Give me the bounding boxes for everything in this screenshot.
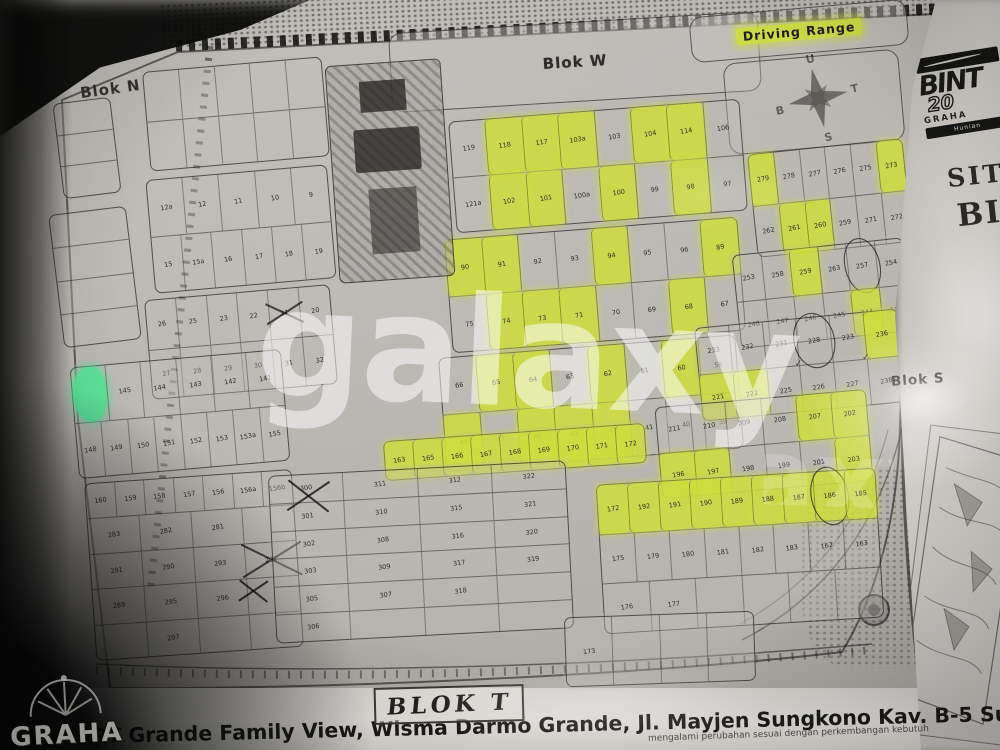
plot-cell: 162 bbox=[808, 520, 846, 571]
plot-number: 179 bbox=[633, 530, 674, 583]
plot-number: 9 bbox=[289, 164, 333, 225]
plot-cell: 19 bbox=[301, 222, 336, 280]
plot-cell: 281 bbox=[190, 509, 244, 547]
block-nw-b: 12a12111091515a16171819 bbox=[145, 164, 336, 293]
block-left-col-a bbox=[52, 97, 121, 199]
plot-cell: 98 bbox=[670, 158, 711, 215]
plot-cell: 191 bbox=[658, 480, 692, 530]
plot-cell bbox=[253, 110, 293, 161]
plot-cell: 209 bbox=[725, 399, 764, 446]
plot-cell: 117 bbox=[521, 114, 562, 171]
plot-cell: 273 bbox=[876, 139, 907, 192]
plot-cell: 172 bbox=[614, 424, 646, 464]
plot-cell: 319 bbox=[495, 545, 571, 576]
facility-building bbox=[353, 126, 422, 174]
plot-cell bbox=[61, 161, 120, 198]
plot-cell: 74 bbox=[485, 291, 526, 349]
plot-row: 173 bbox=[565, 612, 755, 687]
plot-cell: 187 bbox=[781, 472, 815, 522]
plot-cell: 100a bbox=[561, 167, 602, 224]
plot-number: 180 bbox=[667, 528, 708, 581]
plot-number: 158 bbox=[143, 477, 177, 515]
plot-cell: 100 bbox=[598, 164, 639, 221]
plot-number: 156 bbox=[202, 473, 236, 511]
plot-number: 163 bbox=[841, 517, 882, 570]
plot-cell: 236 bbox=[862, 310, 900, 359]
plot-number: 185 bbox=[842, 468, 879, 521]
pen-x-mark bbox=[238, 576, 268, 606]
plot-cell: 290 bbox=[141, 548, 195, 586]
plot-cell: 114 bbox=[666, 103, 707, 160]
block-s-mid: 173 bbox=[564, 611, 756, 688]
plot-cell: 69 bbox=[631, 280, 672, 338]
facility-building bbox=[368, 186, 420, 254]
plot-cell: 207 bbox=[795, 393, 834, 440]
plot-cell: 71 bbox=[558, 286, 599, 344]
plot-number: 141 bbox=[244, 349, 287, 409]
plot-cell: 99 bbox=[634, 161, 675, 218]
block-nw-a bbox=[142, 56, 330, 171]
plot-cell: 101 bbox=[525, 169, 566, 226]
plot-cell bbox=[349, 608, 425, 639]
plot-cell bbox=[147, 119, 186, 170]
plot-number: 157 bbox=[172, 475, 206, 513]
plot-row bbox=[61, 160, 120, 198]
plot-cell: 64 bbox=[512, 350, 553, 408]
plot-cell: 231 bbox=[761, 319, 799, 368]
plot-cell: 208 bbox=[760, 396, 799, 443]
plot-cell: 25 bbox=[175, 296, 210, 347]
plot-cell: 232 bbox=[728, 323, 766, 372]
plot-cell: 62 bbox=[586, 344, 627, 402]
facility-building bbox=[359, 79, 407, 112]
plot-cell: 73 bbox=[522, 288, 563, 346]
plot-cell: 63 bbox=[549, 347, 590, 405]
plot-cell: 103 bbox=[593, 108, 634, 165]
site-plan-photo: U T S B 12a12111091515a16171819262523222… bbox=[0, 0, 1000, 750]
plot-cell: 118 bbox=[484, 117, 525, 174]
plot-cell bbox=[706, 612, 756, 682]
plot-cell: 173 bbox=[565, 617, 614, 687]
plot-cell: 75 bbox=[449, 294, 489, 352]
plot-cell: 228 bbox=[795, 316, 833, 365]
plot-number: 155 bbox=[257, 405, 291, 463]
plot-number: 106 bbox=[701, 99, 745, 159]
plot-cell: 61 bbox=[623, 341, 664, 399]
handwritten-blok-label: BLOK T bbox=[385, 688, 513, 721]
plot-cell bbox=[289, 107, 329, 158]
plot-cell: 158 bbox=[143, 478, 175, 514]
plot-blocks-layer: 12a12111091515a1617181926252322212027282… bbox=[0, 0, 1000, 750]
plot-cell: 141 bbox=[245, 350, 285, 407]
plot-cell: 186 bbox=[812, 471, 846, 521]
plot-cell: 21 bbox=[267, 288, 302, 339]
plot-cell bbox=[197, 615, 251, 653]
plot-cell bbox=[834, 568, 883, 619]
plot-cell: 65 bbox=[475, 353, 516, 411]
plot-cell bbox=[95, 622, 148, 660]
plot-number: 19 bbox=[299, 221, 337, 281]
plot-cell: 106 bbox=[702, 100, 743, 157]
plot-number: 97 bbox=[705, 154, 749, 214]
block-left-col-b bbox=[48, 206, 142, 349]
plot-cell: 119 bbox=[449, 120, 489, 177]
plot-number: 159 bbox=[113, 479, 147, 517]
plot-cell: 157 bbox=[173, 476, 205, 512]
plot-cell: 96 bbox=[663, 221, 704, 279]
plot-cell: 102 bbox=[489, 172, 530, 229]
plot-cell: 283 bbox=[88, 516, 141, 554]
plot-cell: 32 bbox=[302, 334, 337, 385]
plot-cell: 183 bbox=[773, 522, 811, 573]
block-green: 145144143142141148149150151152153153a155 bbox=[70, 349, 291, 479]
plot-number: 273 bbox=[875, 138, 909, 192]
plot-cell: 155 bbox=[258, 405, 289, 462]
plot-cell bbox=[182, 116, 222, 167]
plot-cell: 223 bbox=[829, 313, 867, 362]
plot-cell: 192 bbox=[627, 482, 661, 532]
plot-number: 172 bbox=[614, 423, 648, 465]
plot-cell: 180 bbox=[668, 529, 706, 580]
plot-number: 32 bbox=[301, 333, 339, 386]
plot-cell: 159 bbox=[114, 480, 146, 516]
plot-cell: 188 bbox=[750, 474, 784, 524]
plot-cell: 26 bbox=[145, 299, 179, 350]
plot-number: 306 bbox=[275, 609, 351, 646]
plot-cell: 97 bbox=[706, 155, 747, 212]
plot-cell bbox=[213, 64, 253, 115]
plot-cell bbox=[423, 604, 499, 635]
plot-cell: 185 bbox=[843, 469, 877, 519]
plot-cell: 94 bbox=[590, 226, 631, 284]
plot-cell: 95 bbox=[627, 223, 668, 281]
plot-cell: 70 bbox=[595, 283, 636, 341]
plot-cell bbox=[496, 573, 572, 604]
plot-cell: 291 bbox=[90, 551, 143, 589]
plot-number: 20 bbox=[297, 284, 335, 337]
plot-cell: 307 bbox=[348, 580, 424, 611]
plot-number: 175 bbox=[598, 532, 639, 585]
plot-cell: 295 bbox=[143, 583, 197, 621]
plot-cell: 91 bbox=[481, 235, 522, 293]
plot-cell: 189 bbox=[720, 476, 754, 526]
plot-number: 209 bbox=[724, 398, 765, 448]
plot-number: 289 bbox=[91, 585, 147, 627]
plot-cell: 202 bbox=[830, 390, 869, 437]
plot-cell: 66 bbox=[439, 356, 479, 414]
plot-cell: 233 bbox=[695, 326, 732, 374]
plot-cell bbox=[658, 613, 708, 683]
handwritten-blok-box: BLOK T bbox=[374, 684, 525, 725]
plot-cell: 289 bbox=[93, 587, 146, 625]
plot-cell bbox=[143, 70, 182, 121]
plot-cell: 92 bbox=[517, 232, 558, 290]
plot-cell: 144 bbox=[140, 359, 180, 416]
plot-cell: 172 bbox=[597, 484, 630, 534]
plot-cell: 93 bbox=[554, 229, 595, 287]
plot-cell: 210 bbox=[690, 402, 729, 449]
plot-cell: 306 bbox=[276, 612, 351, 643]
plot-cell: 211 bbox=[655, 405, 693, 452]
plot-cell bbox=[285, 57, 325, 108]
plot-cell: 190 bbox=[689, 478, 723, 528]
plot-cell: 10 bbox=[254, 169, 295, 227]
plot-cell: 11 bbox=[218, 172, 259, 230]
plot-number: 181 bbox=[702, 526, 743, 579]
plot-cell: 143 bbox=[175, 356, 215, 413]
plot-number: 160 bbox=[84, 481, 118, 519]
plot-cell: 179 bbox=[634, 531, 672, 582]
plot-cell: 20 bbox=[298, 285, 333, 336]
blok-partial-label: BI bbox=[955, 194, 1000, 234]
plot-cell: 175 bbox=[600, 533, 637, 584]
plot-cell: 318 bbox=[422, 576, 498, 607]
plot-cell: 171 bbox=[585, 426, 617, 466]
plot-cell: 142 bbox=[210, 353, 250, 410]
plot-number: 173 bbox=[562, 615, 616, 688]
plot-cell: 163 bbox=[842, 518, 880, 569]
block-band-a: 119118117103a103104114106121a102101100a1… bbox=[448, 99, 748, 234]
plot-number: 202 bbox=[829, 389, 870, 439]
central-facility bbox=[325, 58, 456, 284]
plot-cell: 297 bbox=[146, 619, 200, 657]
plot-cell bbox=[611, 615, 661, 685]
pen-x-mark bbox=[287, 474, 331, 518]
plot-number: 297 bbox=[145, 616, 201, 658]
plot-cell: 104 bbox=[629, 106, 670, 163]
plot-cell bbox=[787, 571, 836, 622]
plot-cell: 181 bbox=[703, 527, 741, 578]
plot-cell: 103a bbox=[557, 111, 598, 168]
plot-cell: 282 bbox=[138, 513, 192, 551]
plot-cell bbox=[249, 61, 289, 112]
plot-cell: 9 bbox=[290, 165, 331, 223]
plot-cell bbox=[178, 67, 218, 118]
bintang-logo: BINT 20 GRAHA Hunian bbox=[914, 46, 1000, 176]
plot-cell: 160 bbox=[85, 482, 116, 518]
plot-cell: 156a bbox=[232, 472, 264, 508]
plot-cell: 156 bbox=[202, 474, 234, 510]
block-se: 1721921911901891881871861851751791801811… bbox=[596, 468, 885, 635]
plot-cell: 182 bbox=[738, 525, 776, 576]
plot-cell bbox=[218, 113, 258, 164]
plot-cell: 121a bbox=[453, 175, 493, 232]
